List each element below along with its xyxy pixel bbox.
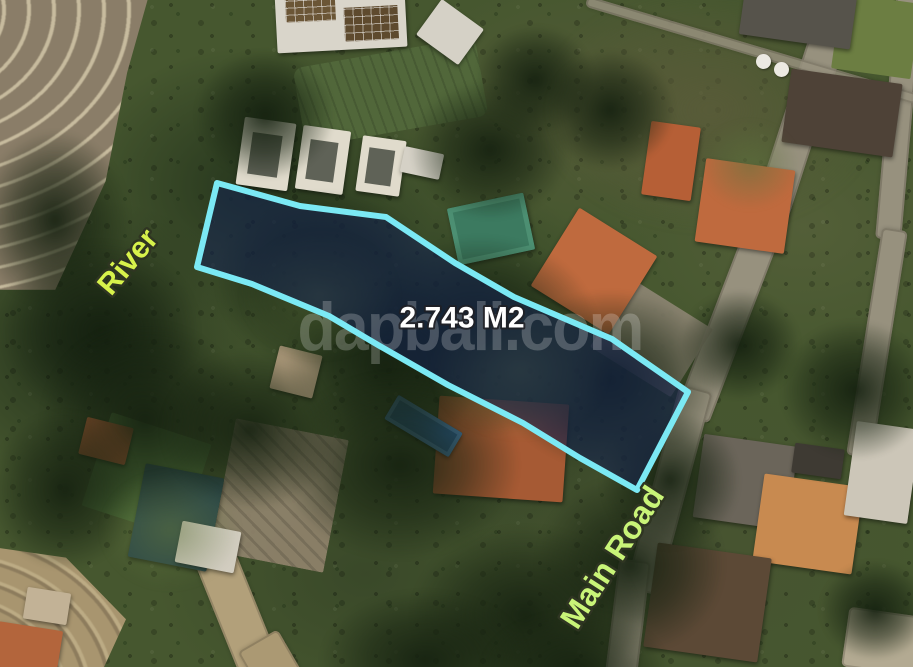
river-label: River <box>91 222 165 301</box>
area-label: 2.743 M2 <box>399 302 524 335</box>
map-canvas: dapbali.com 2.743 M2 River Main Road <box>0 0 913 667</box>
annotation-overlay: dapbali.com 2.743 M2 River Main Road <box>0 0 913 667</box>
main-road-label: Main Road <box>553 479 671 634</box>
